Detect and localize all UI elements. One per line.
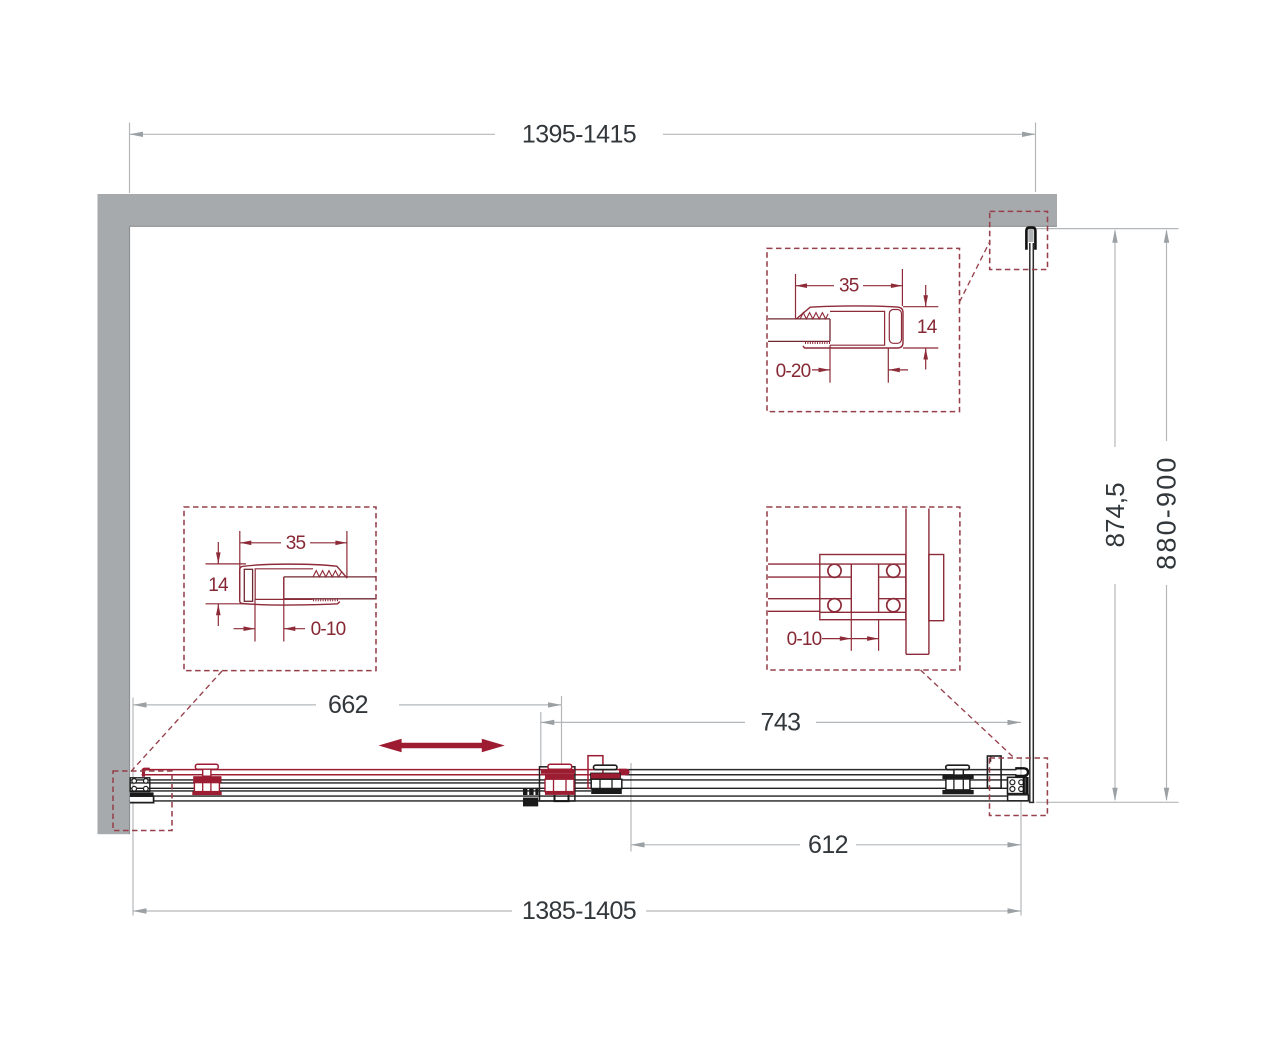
svg-text:14: 14 (917, 317, 938, 338)
svg-text:743: 743 (761, 708, 801, 736)
svg-text:0-10: 0-10 (787, 629, 822, 650)
svg-text:874,5: 874,5 (1100, 482, 1130, 547)
svg-text:1395-1415: 1395-1415 (522, 121, 636, 149)
svg-text:1385-1405: 1385-1405 (522, 897, 636, 925)
svg-text:880-900: 880-900 (1152, 455, 1182, 570)
svg-text:662: 662 (328, 691, 368, 719)
svg-text:35: 35 (839, 276, 859, 297)
svg-text:0-10: 0-10 (311, 619, 346, 640)
svg-text:35: 35 (286, 533, 306, 554)
svg-text:612: 612 (808, 831, 848, 859)
svg-text:14: 14 (208, 575, 229, 596)
svg-text:0-20: 0-20 (776, 361, 811, 382)
